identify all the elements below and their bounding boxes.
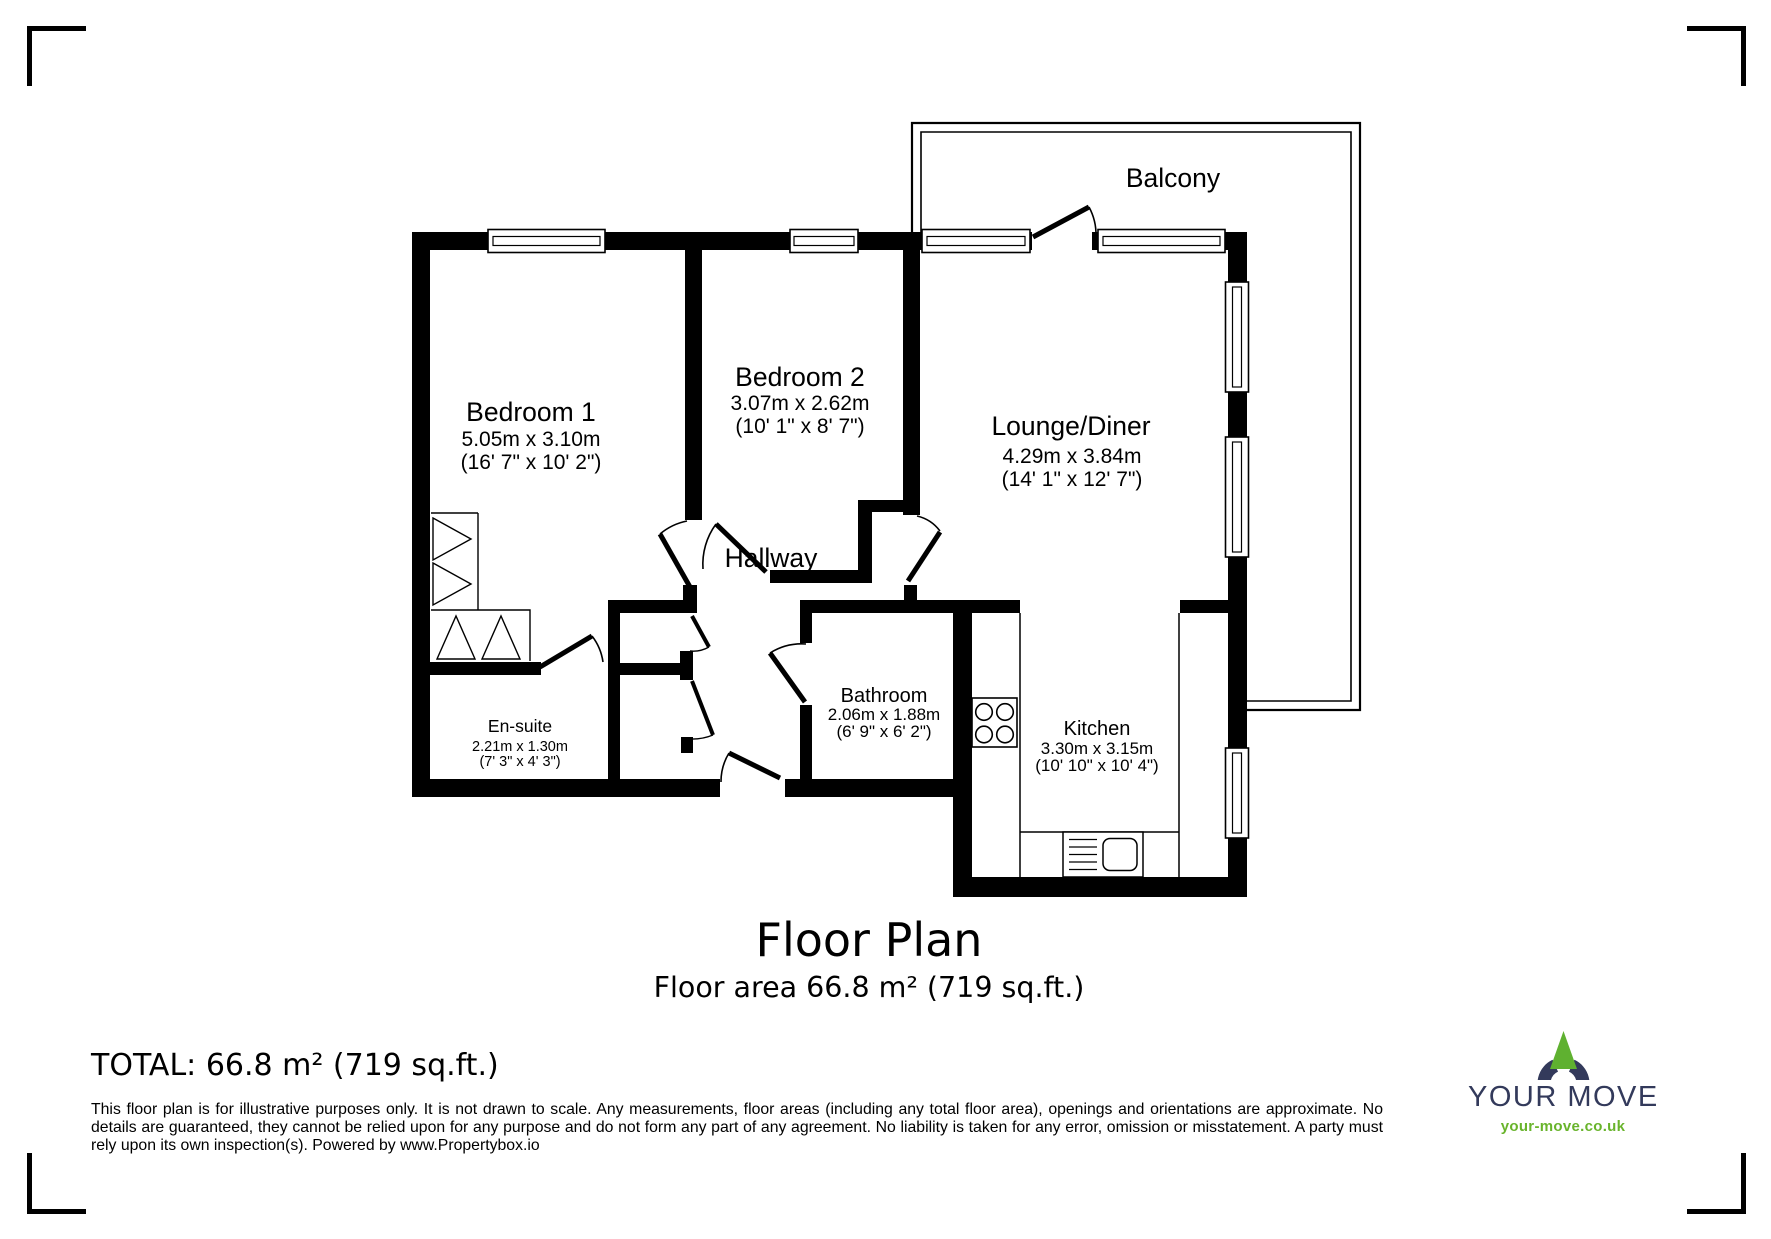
walls <box>412 232 1247 897</box>
disclaimer-text: This floor plan is for illustrative purp… <box>91 1101 1383 1154</box>
corner-mark-top-right <box>1687 29 1744 87</box>
door-ensuite <box>540 636 603 667</box>
window-bedroom2 <box>790 230 858 253</box>
hob-icon <box>972 698 1017 747</box>
lounge-label: Lounge/Diner <box>991 411 1150 441</box>
doors <box>540 207 1096 782</box>
sink-icon <box>1063 832 1143 877</box>
window-kitchen <box>1226 748 1249 838</box>
your-move-brand-text: YOUR MOVE <box>1468 1081 1658 1114</box>
window-lounge-top-right <box>1098 230 1225 253</box>
kitchen-imperial: (10' 10" x 10' 4") <box>1035 756 1158 775</box>
corner-mark-bottom-right <box>1687 1153 1744 1212</box>
door-cupboard-upper <box>690 616 709 651</box>
window-bedroom1 <box>488 230 605 253</box>
lounge-metric: 4.29m x 3.84m <box>1003 445 1142 468</box>
floor-plan-page: Bedroom 1 5.05m x 3.10m (16' 7" x 10' 2"… <box>0 0 1771 1239</box>
door-cupboard-lower <box>689 681 713 739</box>
door-balcony <box>1033 207 1096 237</box>
window-lounge-right-1 <box>1226 282 1249 392</box>
hallway-label: Hallway <box>725 543 819 573</box>
bedroom2-label: Bedroom 2 <box>735 362 865 392</box>
ensuite-metric: 2.21m x 1.30m <box>472 739 568 755</box>
your-move-url: your-move.co.uk <box>1468 1118 1658 1135</box>
balcony-label: Balcony <box>1126 163 1221 193</box>
window-lounge-top-left <box>922 230 1030 253</box>
door-bedroom1 <box>660 521 690 587</box>
bathroom-label: Bathroom <box>841 685 928 707</box>
ensuite-imperial: (7' 3" x 4' 3") <box>479 754 560 770</box>
corner-mark-top-left <box>30 29 87 87</box>
total-area-line: TOTAL: 66.8 m² (719 sq.ft.) <box>91 1048 499 1083</box>
bedroom1-label: Bedroom 1 <box>466 397 596 427</box>
door-bathroom <box>770 644 806 702</box>
kitchen-label: Kitchen <box>1064 718 1131 740</box>
door-lounge <box>908 516 940 581</box>
your-move-logo: YOUR MOVE your-move.co.uk <box>1468 1018 1658 1135</box>
room-labels: Bedroom 1 5.05m x 3.10m (16' 7" x 10' 2"… <box>461 163 1221 775</box>
wardrobe-icon <box>431 513 530 661</box>
bathroom-imperial: (6' 9" x 6' 2") <box>836 722 931 741</box>
bedroom1-metric: 5.05m x 3.10m <box>462 428 601 451</box>
ensuite-label: En-suite <box>488 716 552 736</box>
bedroom1-imperial: (16' 7" x 10' 2") <box>461 451 602 474</box>
bedroom2-metric: 3.07m x 2.62m <box>731 392 870 415</box>
bedroom2-imperial: (10' 1" x 8' 7") <box>735 415 864 438</box>
corner-mark-bottom-left <box>30 1153 87 1212</box>
page-title: Floor Plan <box>756 913 983 967</box>
window-lounge-right-2 <box>1226 437 1249 557</box>
floor-area-subtitle: Floor area 66.8 m² (719 sq.ft.) <box>654 971 1085 1004</box>
lounge-imperial: (14' 1" x 12' 7") <box>1002 468 1143 491</box>
your-move-logo-icon <box>1521 1018 1606 1080</box>
door-entrance <box>721 753 780 782</box>
